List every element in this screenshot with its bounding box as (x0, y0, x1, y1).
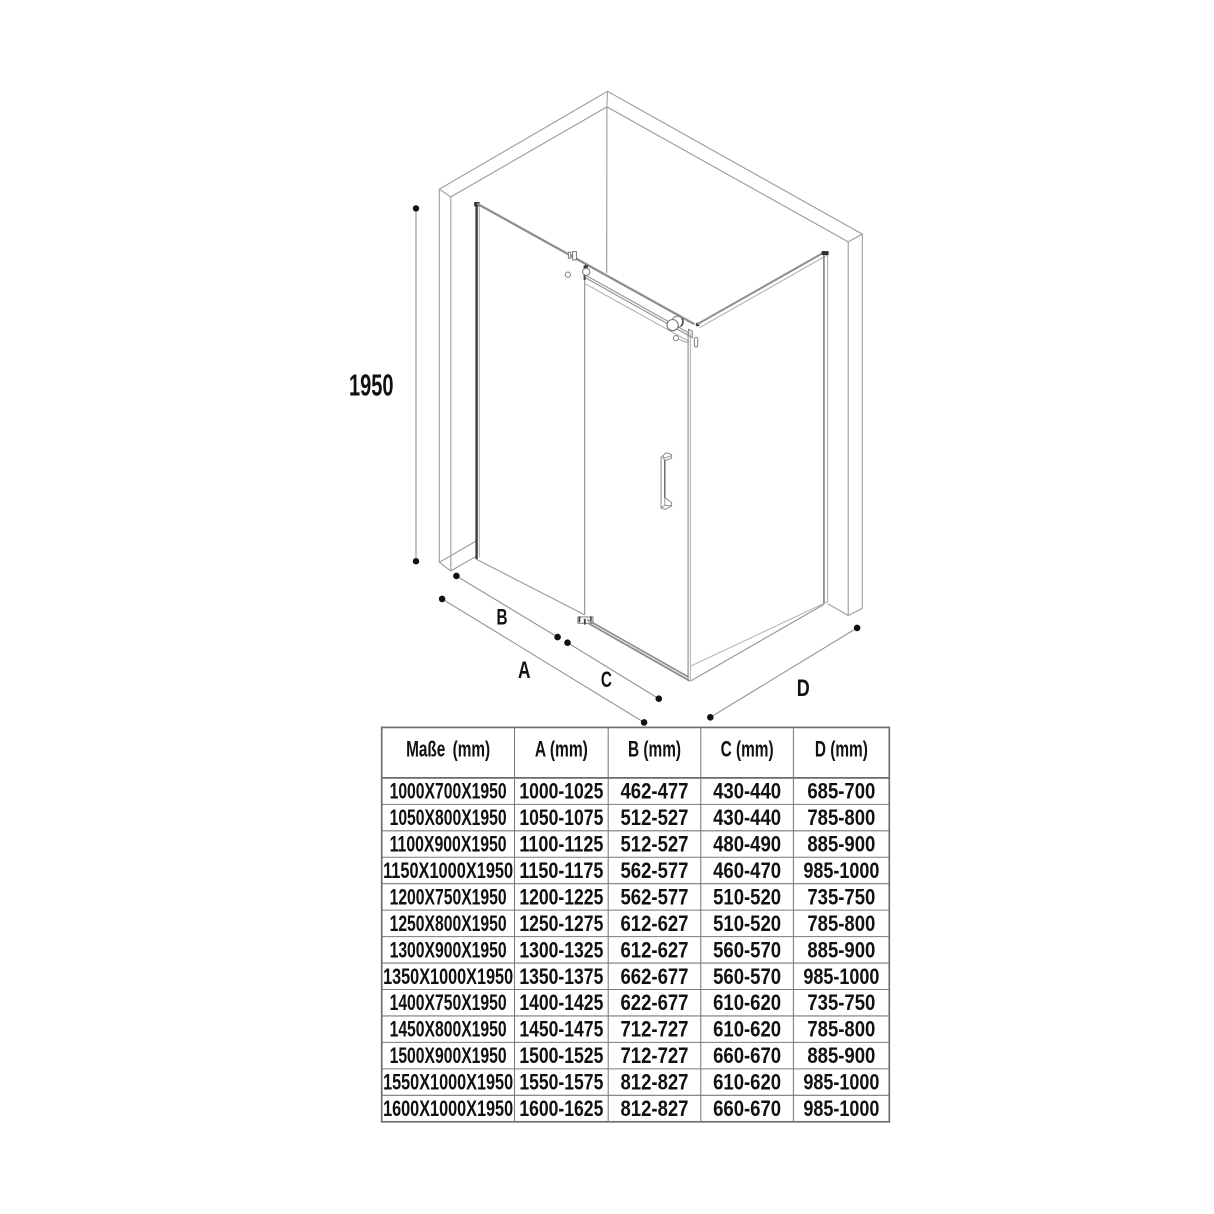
svg-text:1350-1375: 1350-1375 (519, 964, 603, 989)
svg-text:1450-1475: 1450-1475 (519, 1017, 603, 1042)
svg-text:785-800: 785-800 (807, 805, 875, 830)
svg-text:712-727: 712-727 (621, 1043, 689, 1068)
svg-text:510-520: 510-520 (713, 911, 781, 936)
svg-text:1400X750X1950: 1400X750X1950 (390, 990, 507, 1015)
svg-text:C (mm): C (mm) (721, 737, 774, 762)
svg-text:A: A (518, 657, 531, 684)
svg-text:1350X1000X1950: 1350X1000X1950 (383, 964, 513, 989)
svg-text:1050X800X1950: 1050X800X1950 (390, 805, 507, 830)
svg-text:1300X900X1950: 1300X900X1950 (390, 937, 507, 962)
svg-text:1200-1225: 1200-1225 (519, 884, 603, 909)
svg-text:D: D (797, 675, 810, 702)
svg-text:B: B (497, 604, 508, 629)
svg-text:560-570: 560-570 (713, 964, 781, 989)
svg-text:A (mm): A (mm) (535, 737, 588, 762)
svg-text:812-827: 812-827 (621, 1096, 689, 1121)
svg-text:812-827: 812-827 (621, 1070, 689, 1095)
svg-text:512-527: 512-527 (621, 832, 689, 857)
svg-text:1950: 1950 (349, 368, 394, 403)
svg-text:1100-1125: 1100-1125 (519, 832, 603, 857)
svg-text:785-800: 785-800 (807, 911, 875, 936)
svg-text:1500X900X1950: 1500X900X1950 (390, 1043, 507, 1068)
svg-text:985-1000: 985-1000 (803, 964, 879, 989)
svg-text:1550-1575: 1550-1575 (519, 1070, 603, 1095)
svg-text:1150-1175: 1150-1175 (519, 858, 603, 883)
svg-text:430-440: 430-440 (713, 779, 781, 804)
svg-text:1250-1275: 1250-1275 (519, 911, 603, 936)
svg-text:D (mm): D (mm) (815, 737, 868, 762)
svg-text:1450X800X1950: 1450X800X1950 (390, 1017, 507, 1042)
svg-text:560-570: 560-570 (713, 937, 781, 962)
svg-text:622-677: 622-677 (621, 990, 689, 1015)
svg-text:1500-1525: 1500-1525 (519, 1043, 603, 1068)
svg-text:562-577: 562-577 (621, 858, 689, 883)
svg-text:685-700: 685-700 (807, 779, 875, 804)
svg-text:985-1000: 985-1000 (803, 858, 879, 883)
svg-text:1200X750X1950: 1200X750X1950 (390, 884, 507, 909)
svg-text:610-620: 610-620 (713, 1070, 781, 1095)
svg-text:885-900: 885-900 (807, 832, 875, 857)
svg-text:462-477: 462-477 (621, 779, 689, 804)
svg-text:985-1000: 985-1000 (803, 1096, 879, 1121)
svg-text:1000X700X1950: 1000X700X1950 (390, 779, 507, 804)
svg-text:985-1000: 985-1000 (803, 1070, 879, 1095)
svg-text:1300-1325: 1300-1325 (519, 937, 603, 962)
svg-text:C: C (601, 667, 612, 692)
svg-text:B (mm): B (mm) (628, 737, 681, 762)
svg-text:612-627: 612-627 (621, 911, 689, 936)
svg-text:512-527: 512-527 (621, 805, 689, 830)
svg-text:885-900: 885-900 (807, 1043, 875, 1068)
svg-text:1600X1000X1950: 1600X1000X1950 (383, 1096, 513, 1121)
svg-text:480-490: 480-490 (713, 832, 781, 857)
svg-text:1400-1425: 1400-1425 (519, 990, 603, 1015)
svg-text:662-677: 662-677 (621, 964, 689, 989)
svg-text:1000-1025: 1000-1025 (519, 779, 603, 804)
svg-text:660-670: 660-670 (713, 1096, 781, 1121)
svg-text:712-727: 712-727 (621, 1017, 689, 1042)
svg-text:735-750: 735-750 (807, 884, 875, 909)
svg-text:1050-1075: 1050-1075 (519, 805, 603, 830)
svg-text:1550X1000X1950: 1550X1000X1950 (383, 1070, 513, 1095)
svg-text:610-620: 610-620 (713, 990, 781, 1015)
svg-text:885-900: 885-900 (807, 937, 875, 962)
svg-text:612-627: 612-627 (621, 937, 689, 962)
svg-text:660-670: 660-670 (713, 1043, 781, 1068)
svg-text:610-620: 610-620 (713, 1017, 781, 1042)
svg-text:1250X800X1950: 1250X800X1950 (390, 911, 507, 936)
svg-text:510-520: 510-520 (713, 884, 781, 909)
svg-text:735-750: 735-750 (807, 990, 875, 1015)
svg-text:430-440: 430-440 (713, 805, 781, 830)
svg-text:Maße (mm): Maße (mm) (406, 737, 490, 762)
svg-text:1150X1000X1950: 1150X1000X1950 (383, 858, 513, 883)
svg-text:1100X900X1950: 1100X900X1950 (390, 832, 507, 857)
svg-text:1600-1625: 1600-1625 (519, 1096, 603, 1121)
svg-text:562-577: 562-577 (621, 884, 689, 909)
svg-text:460-470: 460-470 (713, 858, 781, 883)
svg-text:785-800: 785-800 (807, 1017, 875, 1042)
